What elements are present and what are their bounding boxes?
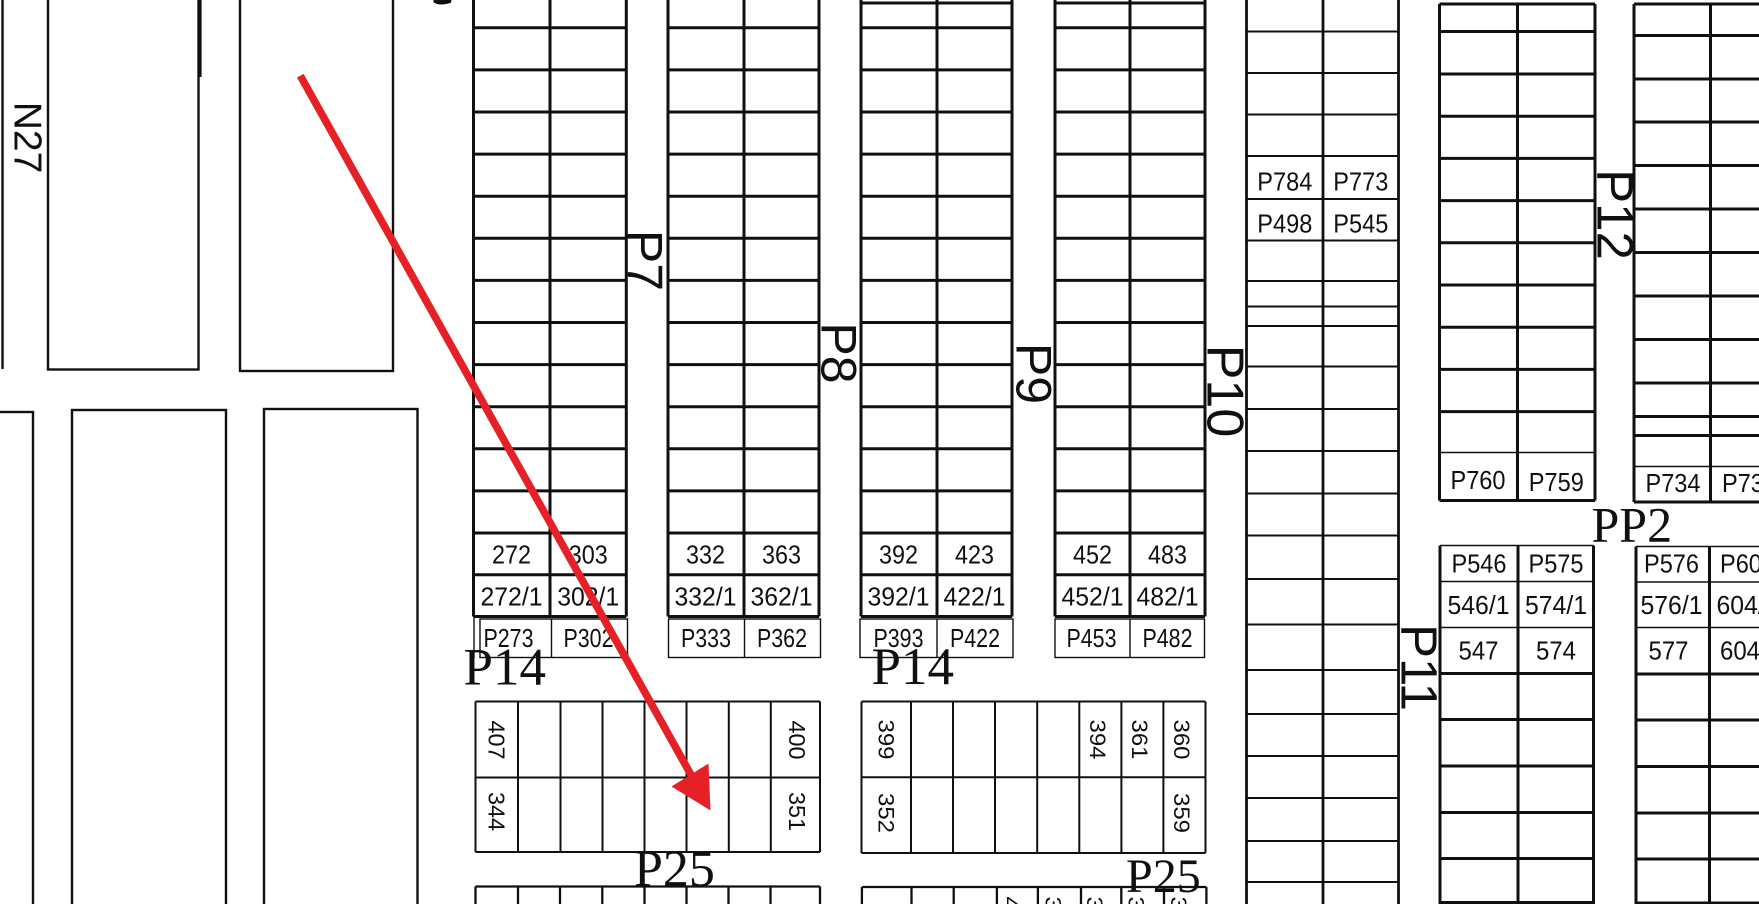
svg-text:272/1: 272/1 bbox=[481, 584, 543, 612]
svg-text:547: 547 bbox=[1459, 638, 1499, 666]
svg-text:P733: P733 bbox=[1722, 470, 1759, 498]
svg-text:P14: P14 bbox=[464, 639, 546, 697]
svg-text:577: 577 bbox=[1649, 638, 1689, 666]
svg-text:423: 423 bbox=[955, 542, 994, 570]
svg-text:P605: P605 bbox=[1720, 551, 1759, 579]
svg-text:546/1: 546/1 bbox=[1448, 592, 1510, 620]
svg-text:332: 332 bbox=[686, 542, 725, 570]
svg-text:452: 452 bbox=[1073, 542, 1112, 570]
svg-text:PP2: PP2 bbox=[1592, 497, 1673, 553]
svg-text:P545: P545 bbox=[1333, 211, 1388, 239]
svg-text:483: 483 bbox=[1148, 542, 1187, 570]
svg-text:344: 344 bbox=[484, 792, 510, 831]
svg-text:P453: P453 bbox=[1067, 625, 1117, 653]
svg-text:P9: P9 bbox=[1006, 343, 1062, 404]
svg-text:P8: P8 bbox=[811, 322, 867, 383]
svg-text:352: 352 bbox=[874, 793, 899, 833]
svg-text:604: 604 bbox=[1720, 638, 1759, 666]
svg-text:394: 394 bbox=[1085, 720, 1110, 760]
svg-text:342: 342 bbox=[1040, 897, 1065, 904]
svg-text:482/1: 482/1 bbox=[1137, 584, 1199, 612]
svg-text:340: 340 bbox=[1124, 897, 1149, 904]
svg-text:362/1: 362/1 bbox=[751, 584, 813, 612]
svg-text:422/1: 422/1 bbox=[944, 584, 1006, 612]
svg-text:399: 399 bbox=[874, 720, 899, 760]
svg-text:452/1: 452/1 bbox=[1062, 584, 1124, 612]
svg-text:P576: P576 bbox=[1644, 551, 1699, 579]
svg-text:P333: P333 bbox=[681, 625, 731, 653]
svg-text:P25: P25 bbox=[634, 841, 715, 898]
svg-text:361: 361 bbox=[1127, 720, 1152, 760]
svg-text:576/1: 576/1 bbox=[1641, 592, 1703, 620]
svg-text:P773: P773 bbox=[1333, 169, 1388, 197]
svg-text:P759: P759 bbox=[1529, 469, 1584, 497]
svg-text:363: 363 bbox=[762, 542, 801, 570]
svg-text:447: 447 bbox=[998, 897, 1023, 904]
svg-text:N27: N27 bbox=[6, 102, 49, 174]
svg-text:P498: P498 bbox=[1257, 211, 1312, 239]
svg-text:332/1: 332/1 bbox=[675, 584, 737, 612]
svg-text:341: 341 bbox=[1082, 897, 1107, 904]
svg-text:P784: P784 bbox=[1257, 169, 1312, 197]
svg-text:400: 400 bbox=[784, 721, 810, 760]
svg-text:351: 351 bbox=[784, 792, 810, 831]
svg-text:P575: P575 bbox=[1529, 551, 1584, 579]
svg-text:P14: P14 bbox=[872, 638, 954, 696]
svg-text:574/1: 574/1 bbox=[1525, 592, 1587, 620]
svg-text:P362: P362 bbox=[757, 625, 807, 653]
svg-text:P10: P10 bbox=[1196, 345, 1254, 438]
svg-text:P734: P734 bbox=[1646, 470, 1701, 498]
svg-text:392: 392 bbox=[879, 542, 918, 570]
svg-text:P546: P546 bbox=[1452, 551, 1507, 579]
svg-text:604/1: 604/1 bbox=[1717, 592, 1759, 620]
svg-text:P422: P422 bbox=[950, 625, 1000, 653]
svg-text:360: 360 bbox=[1169, 720, 1194, 760]
svg-text:359: 359 bbox=[1169, 793, 1194, 833]
svg-text:339: 339 bbox=[1166, 897, 1191, 904]
svg-text:272: 272 bbox=[492, 542, 531, 570]
svg-text:P760: P760 bbox=[1451, 467, 1506, 495]
svg-text:P482: P482 bbox=[1143, 625, 1193, 653]
svg-text:407: 407 bbox=[484, 721, 510, 760]
svg-text:574: 574 bbox=[1536, 638, 1576, 666]
svg-text:P7: P7 bbox=[617, 230, 673, 291]
svg-text:392/1: 392/1 bbox=[868, 584, 930, 612]
